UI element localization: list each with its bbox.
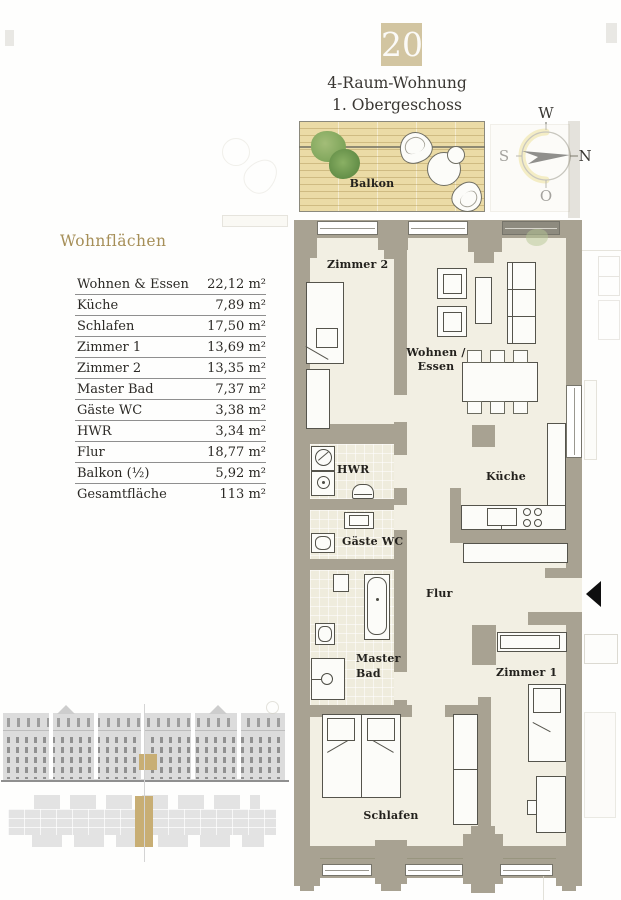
floorplan-brochure-page: 20 4-Raum-Wohnung 1. Obergeschoss W S N … — [0, 0, 621, 900]
entry-door-opening — [566, 578, 582, 612]
room-label-hwr: HWR — [337, 463, 370, 476]
coffee-table — [475, 277, 492, 324]
unit-number-badge: 20 — [381, 23, 422, 66]
dining-table — [462, 362, 538, 402]
area-table-row: Master Bad7,37 m² — [75, 379, 266, 400]
facade-pilaster — [300, 886, 314, 891]
facade-pilaster — [471, 826, 495, 834]
desk-chair — [527, 800, 537, 815]
stairwell-area — [584, 712, 616, 818]
kitchen-window — [566, 385, 582, 458]
kitchen-column — [472, 425, 495, 447]
area-label: Gäste WC — [77, 403, 142, 418]
bathtub-drain — [376, 598, 379, 601]
bed-blanket — [316, 328, 338, 348]
bed — [306, 282, 344, 364]
facade-pilaster — [471, 884, 495, 893]
stairwell-door — [584, 634, 618, 664]
area-value: 18,77 m² — [207, 445, 266, 460]
locator-axis-line — [144, 704, 145, 862]
utility-sink — [352, 484, 374, 499]
balcony-side-table — [447, 146, 465, 164]
elevation-section-gap — [237, 713, 241, 779]
area-table-row-total: Gesamtfläche113 m² — [75, 484, 266, 505]
dining-chair — [513, 350, 528, 363]
area-table-row: Flur18,77 m² — [75, 442, 266, 463]
entrance-arrow-icon — [586, 581, 601, 607]
facade-pilaster — [556, 846, 582, 886]
area-label: Balkon (½) — [77, 466, 149, 481]
neighbor-wall-line — [582, 250, 621, 251]
dining-chair — [490, 350, 505, 363]
room-label-zimmer2: Zimmer 2 — [327, 258, 388, 271]
room-label-flur: Flur — [426, 587, 453, 600]
neighbor-plant-outline — [222, 138, 250, 166]
stove-burner — [523, 508, 531, 516]
room-label-master-bad: Bad — [356, 667, 381, 680]
background-plan-line — [543, 876, 544, 900]
room-label-balkon: Balkon — [340, 177, 404, 190]
kitchen-sink — [487, 508, 517, 526]
bath-sink — [333, 574, 349, 592]
toilet-bowl — [315, 536, 331, 550]
bedroom-window — [322, 864, 372, 876]
facade-pilaster — [381, 884, 401, 891]
dining-chair — [513, 401, 528, 414]
balcony-divider-wall — [568, 121, 580, 218]
dryer-dot — [322, 481, 325, 484]
room-label-zimmer1: Zimmer 1 — [496, 666, 557, 679]
elevation-pediment — [209, 705, 227, 714]
area-value: 7,89 m² — [215, 298, 266, 313]
elevation-section-gap — [94, 713, 98, 779]
area-label: Schlafen — [77, 319, 134, 334]
wall-pier — [294, 238, 317, 258]
area-label: HWR — [77, 424, 112, 439]
area-label: Gesamtfläche — [77, 487, 167, 502]
page-title: 4-Raum-Wohnung — [247, 74, 547, 92]
area-value: 7,37 m² — [215, 382, 266, 397]
wall-right — [566, 612, 582, 878]
room-label-gaeste-wc: Gäste WC — [342, 535, 403, 548]
compass-west: W — [538, 104, 554, 122]
area-table-row: Küche7,89 m² — [75, 295, 266, 316]
facade-pilaster — [294, 846, 320, 886]
balcony-door-window — [408, 221, 468, 235]
area-table-row: Zimmer 113,69 m² — [75, 337, 266, 358]
elevation-section-gap — [49, 713, 53, 779]
faint-mark-right — [606, 23, 617, 43]
wall-interior — [472, 625, 496, 665]
neighbor-balcony-right — [490, 124, 570, 212]
area-table-row: HWR3,34 m² — [75, 421, 266, 442]
area-label: Zimmer 1 — [77, 340, 141, 355]
wardrobe — [306, 369, 330, 429]
wall-pier — [474, 252, 494, 263]
area-table-row: Zimmer 213,35 m² — [75, 358, 266, 379]
room-label-schlafen: Schlafen — [360, 809, 422, 822]
kitchen-tap — [501, 525, 502, 530]
area-table-heading: Wohnflächen — [60, 232, 166, 250]
area-table: Wohnen & Essen22,12 m² Küche7,89 m² Schl… — [75, 274, 266, 505]
shower-drain — [321, 673, 333, 685]
facade-pilaster — [375, 840, 407, 884]
room-label-master-bad: Master — [356, 652, 401, 665]
neighbor-furniture-outline — [598, 256, 620, 296]
wall-interior — [310, 559, 394, 570]
wall-interior — [478, 697, 491, 830]
armchair-cushion — [443, 274, 462, 294]
elevation-section-gap — [191, 713, 195, 779]
washing-machine-drum — [315, 449, 332, 466]
wall-pier — [468, 238, 502, 252]
wall-interior — [310, 499, 394, 510]
pillow — [327, 718, 355, 741]
room-label-wohnen-essen: Wohnen / — [404, 346, 468, 359]
dining-chair — [490, 401, 505, 414]
dining-chair — [467, 401, 482, 414]
stove-burner — [534, 519, 542, 527]
area-table-row: Schlafen17,50 m² — [75, 316, 266, 337]
dining-chair — [467, 350, 482, 363]
wall-interior — [450, 530, 582, 543]
area-label: Master Bad — [77, 382, 154, 397]
stove-burner — [523, 519, 531, 527]
area-value: 3,38 m² — [215, 403, 266, 418]
area-value: 22,12 m² — [207, 277, 266, 292]
neighbor-furniture-outline — [598, 300, 620, 340]
area-table-row: Gäste WC3,38 m² — [75, 400, 266, 421]
bedroom-window — [405, 864, 463, 876]
area-value: 3,34 m² — [215, 424, 266, 439]
elevation-pediment — [57, 705, 75, 714]
stove-burner — [534, 508, 542, 516]
background-plan-circle — [266, 701, 279, 714]
pillow — [533, 688, 561, 713]
area-value: 13,35 m² — [207, 361, 266, 376]
area-value: 17,50 m² — [207, 319, 266, 334]
toilet-bowl — [318, 626, 332, 642]
sideboard-inner — [500, 635, 560, 649]
site-plan — [8, 795, 276, 849]
balcony-door-window — [317, 221, 378, 235]
wall-interior — [394, 530, 407, 672]
window-sill-line — [310, 858, 566, 859]
area-label: Flur — [77, 445, 105, 460]
wc-sink-basin — [349, 515, 369, 526]
double-bed-split — [361, 715, 362, 797]
armchair-cushion — [443, 312, 462, 332]
room-label-wohnen-essen: Essen — [404, 360, 468, 373]
sofa-back-line — [512, 263, 513, 343]
wall-interior — [545, 568, 582, 578]
kitchen-counter — [547, 423, 566, 507]
bathtub-basin — [367, 577, 387, 635]
area-table-row: Wohnen & Essen22,12 m² — [75, 274, 266, 295]
wardrobe-divider — [454, 769, 477, 770]
desk — [536, 776, 566, 833]
utility-sink-line — [354, 494, 372, 495]
area-label: Zimmer 2 — [77, 361, 141, 376]
faint-mark-left — [5, 30, 14, 46]
compass-north: N — [578, 147, 591, 165]
area-label: Küche — [77, 298, 118, 313]
area-value: 113 m² — [220, 487, 266, 502]
wall-interior — [528, 612, 575, 625]
neighbor-balcony-shelf — [222, 215, 288, 227]
elevation-unit-highlight — [139, 754, 157, 770]
facade-pilaster — [562, 886, 576, 891]
area-value: 13,69 m² — [207, 340, 266, 355]
bedroom-window — [500, 864, 553, 876]
pillow — [367, 718, 395, 741]
area-value: 5,92 m² — [215, 466, 266, 481]
facade-pilaster — [463, 834, 503, 884]
hallway-sideboard — [463, 543, 568, 563]
room-label-kueche: Küche — [480, 470, 532, 483]
wall-interior — [394, 422, 407, 455]
area-label: Wohnen & Essen — [77, 277, 189, 292]
wall-right — [566, 458, 582, 578]
wall-interior — [394, 488, 407, 505]
shower-arm — [311, 679, 322, 680]
elevation-baseline — [1, 780, 289, 782]
neighbor-corridor — [584, 380, 597, 460]
wall-right — [566, 220, 582, 385]
area-table-row: Balkon (½)5,92 m² — [75, 463, 266, 484]
